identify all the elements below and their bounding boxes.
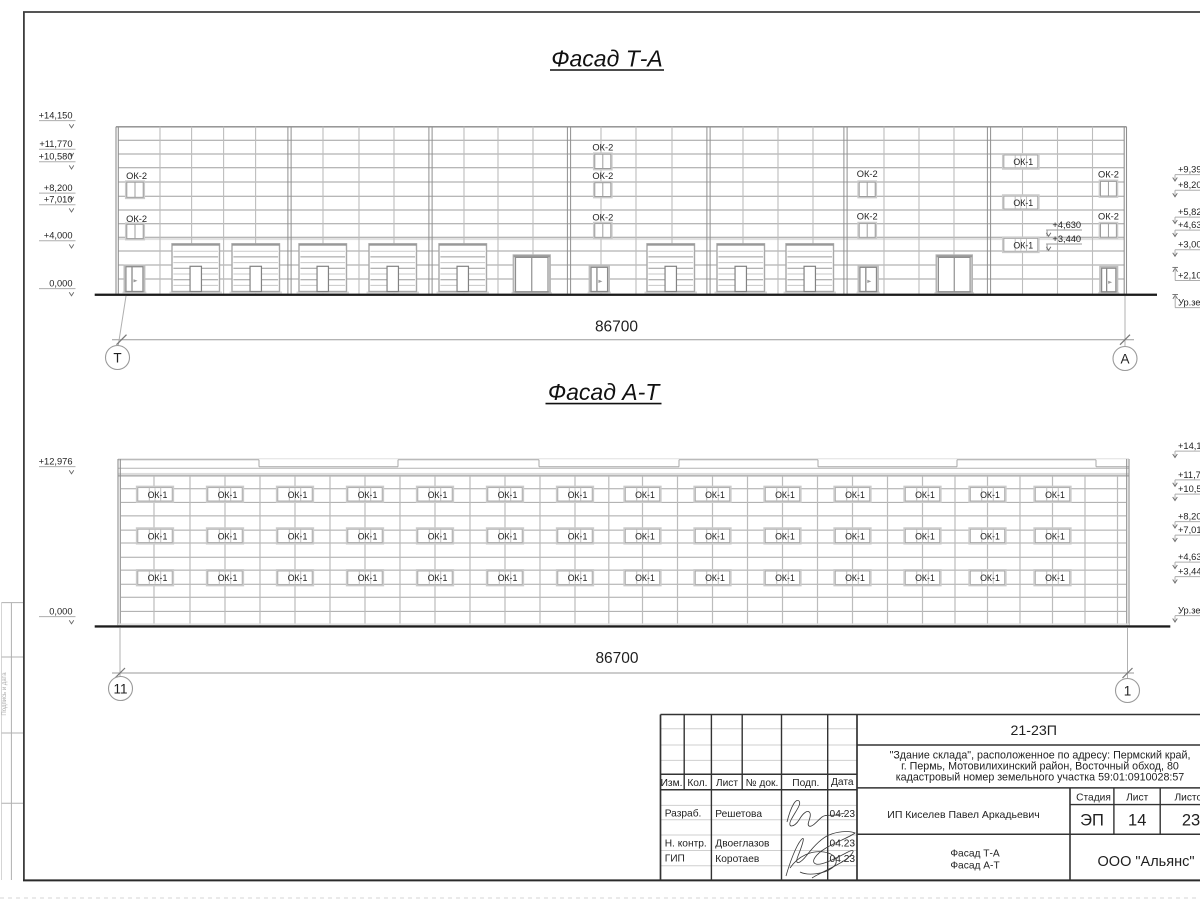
svg-text:ОК-1: ОК-1 xyxy=(845,490,865,500)
svg-text:ГИП: ГИП xyxy=(665,854,685,865)
svg-text:14: 14 xyxy=(1128,811,1146,829)
svg-text:Коротаев: Коротаев xyxy=(715,854,759,865)
svg-text:ОК-1: ОК-1 xyxy=(218,490,238,500)
svg-text:+7,010: +7,010 xyxy=(44,195,73,205)
svg-text:ОК-1: ОК-1 xyxy=(498,573,518,583)
svg-text:86700: 86700 xyxy=(595,650,638,667)
svg-text:ОК-2: ОК-2 xyxy=(126,214,147,224)
svg-text:ЭП: ЭП xyxy=(1080,811,1104,829)
svg-text:ОК-1: ОК-1 xyxy=(1045,490,1065,500)
svg-text:ОК-1: ОК-1 xyxy=(218,531,238,541)
svg-text:Фасад А-Т: Фасад А-Т xyxy=(950,861,999,872)
svg-text:Двоеглазов: Двоеглазов xyxy=(715,839,769,850)
svg-text:ОК-1: ОК-1 xyxy=(705,531,725,541)
svg-text:0,000: 0,000 xyxy=(49,278,72,288)
svg-text:ОК-1: ОК-1 xyxy=(845,531,865,541)
svg-text:ОК-1: ОК-1 xyxy=(775,531,795,541)
svg-text:Фасад Т-А: Фасад Т-А xyxy=(950,849,1000,860)
svg-text:ОК-2: ОК-2 xyxy=(857,211,878,221)
svg-text:ОК-1: ОК-1 xyxy=(288,490,308,500)
svg-text:+11,770: +11,770 xyxy=(1178,470,1200,480)
svg-text:+4,630: +4,630 xyxy=(1052,220,1081,230)
svg-text:ОК-2: ОК-2 xyxy=(592,212,613,222)
svg-text:+3,000: +3,000 xyxy=(1178,240,1200,250)
svg-text:Фасад Т-А: Фасад Т-А xyxy=(551,46,663,72)
svg-text:+12,976: +12,976 xyxy=(39,456,73,466)
svg-text:Дата: Дата xyxy=(831,777,854,788)
svg-text:86700: 86700 xyxy=(595,319,638,336)
svg-text:ИП Киселев Павел Аркадьевич: ИП Киселев Павел Аркадьевич xyxy=(887,809,1039,821)
svg-text:ОК-1: ОК-1 xyxy=(635,531,655,541)
svg-text:ОК-2: ОК-2 xyxy=(1098,212,1119,222)
svg-text:ОК-1: ОК-1 xyxy=(915,531,935,541)
svg-text:ОК-1: ОК-1 xyxy=(568,531,588,541)
svg-text:23: 23 xyxy=(1182,811,1200,829)
svg-text:ОК-1: ОК-1 xyxy=(428,490,448,500)
svg-text:ОК-2: ОК-2 xyxy=(126,171,147,181)
svg-text:Изм.: Изм. xyxy=(661,778,683,789)
svg-text:ОК-1: ОК-1 xyxy=(845,573,865,583)
svg-text:ОК-1: ОК-1 xyxy=(568,490,588,500)
svg-text:+11,770: +11,770 xyxy=(39,139,72,149)
svg-text:21-23П: 21-23П xyxy=(1010,723,1056,739)
svg-text:Решетова: Решетова xyxy=(715,809,762,820)
svg-text:ОК-1: ОК-1 xyxy=(705,573,725,583)
svg-text:ОК-1: ОК-1 xyxy=(288,531,308,541)
svg-text:ОК-1: ОК-1 xyxy=(358,573,378,583)
svg-text:ОК-1: ОК-1 xyxy=(980,490,1000,500)
svg-text:+14,150: +14,150 xyxy=(39,110,73,120)
svg-text:+14,150: +14,150 xyxy=(1178,441,1200,451)
svg-text:Лист: Лист xyxy=(716,778,738,789)
svg-text:Подпись и дата: Подпись и дата xyxy=(2,672,8,716)
svg-text:ОК-1: ОК-1 xyxy=(358,490,378,500)
svg-text:ОК-1: ОК-1 xyxy=(358,531,378,541)
svg-text:+8,200: +8,200 xyxy=(1178,512,1200,522)
svg-text:ОК-1: ОК-1 xyxy=(1013,157,1033,167)
svg-text:ОК-1: ОК-1 xyxy=(428,573,448,583)
svg-text:1: 1 xyxy=(1124,683,1132,698)
svg-text:Ур.земли: Ур.земли xyxy=(1178,606,1200,616)
svg-text:ОК-1: ОК-1 xyxy=(148,490,168,500)
svg-text:Разраб.: Разраб. xyxy=(665,808,702,820)
svg-text:11: 11 xyxy=(113,681,127,696)
svg-text:Ур.земли: Ур.земли xyxy=(1178,298,1200,308)
svg-text:№ док.: № док. xyxy=(746,778,779,789)
svg-text:Подп.: Подп. xyxy=(792,778,819,789)
svg-text:ОК-1: ОК-1 xyxy=(775,490,795,500)
svg-text:+8,200: +8,200 xyxy=(1178,180,1200,190)
svg-text:ОК-1: ОК-1 xyxy=(148,573,168,583)
svg-text:А: А xyxy=(1120,351,1129,366)
svg-text:+7,010: +7,010 xyxy=(1178,525,1200,535)
svg-text:+8,200: +8,200 xyxy=(44,183,73,193)
svg-text:ОК-1: ОК-1 xyxy=(1013,240,1033,250)
svg-text:+2,100: +2,100 xyxy=(1178,270,1200,280)
svg-text:+4,630: +4,630 xyxy=(1178,220,1200,230)
svg-text:ОК-1: ОК-1 xyxy=(568,573,588,583)
svg-text:ОК-2: ОК-2 xyxy=(1098,169,1119,179)
svg-text:+10,580: +10,580 xyxy=(39,152,73,162)
svg-text:Фасад А-Т: Фасад А-Т xyxy=(548,379,661,405)
svg-text:04.23: 04.23 xyxy=(830,809,856,820)
svg-text:ОК-1: ОК-1 xyxy=(635,573,655,583)
svg-text:ОК-1: ОК-1 xyxy=(980,573,1000,583)
svg-text:0,000: 0,000 xyxy=(49,606,72,616)
svg-text:кадастровый номер земельного у: кадастровый номер земельного участка 59:… xyxy=(896,772,1185,784)
svg-text:ОК-1: ОК-1 xyxy=(428,531,448,541)
svg-text:+9,390: +9,390 xyxy=(1178,165,1200,175)
svg-text:+4,000: +4,000 xyxy=(44,231,73,241)
svg-text:ОК-1: ОК-1 xyxy=(1045,531,1065,541)
svg-text:+3,440: +3,440 xyxy=(1052,234,1081,244)
svg-text:ОК-1: ОК-1 xyxy=(775,573,795,583)
svg-text:+5,820: +5,820 xyxy=(1178,207,1200,217)
svg-text:+10,580: +10,580 xyxy=(1178,484,1200,494)
svg-text:ОК-1: ОК-1 xyxy=(498,490,518,500)
svg-text:ОК-2: ОК-2 xyxy=(592,143,613,153)
svg-text:ООО "Альянс": ООО "Альянс" xyxy=(1098,854,1195,870)
svg-text:ОК-1: ОК-1 xyxy=(1013,198,1033,208)
svg-text:Н. контр.: Н. контр. xyxy=(665,838,707,849)
svg-text:ОК-1: ОК-1 xyxy=(635,490,655,500)
svg-text:ОК-1: ОК-1 xyxy=(498,531,518,541)
svg-text:ОК-1: ОК-1 xyxy=(148,531,168,541)
svg-text:ОК-1: ОК-1 xyxy=(705,490,725,500)
svg-text:Кол.: Кол. xyxy=(687,778,707,789)
svg-text:+4,630: +4,630 xyxy=(1178,552,1200,562)
svg-text:ОК-1: ОК-1 xyxy=(218,573,238,583)
svg-text:ОК-2: ОК-2 xyxy=(592,171,613,181)
svg-text:ОК-1: ОК-1 xyxy=(915,490,935,500)
svg-text:Т: Т xyxy=(113,350,121,365)
svg-text:Стадия: Стадия xyxy=(1076,793,1111,804)
svg-text:+3,440: +3,440 xyxy=(1178,567,1200,577)
svg-text:ОК-1: ОК-1 xyxy=(915,573,935,583)
svg-text:Лист: Лист xyxy=(1126,793,1148,804)
svg-text:ОК-2: ОК-2 xyxy=(857,169,878,179)
svg-text:Листов: Листов xyxy=(1174,793,1200,804)
svg-text:ОК-1: ОК-1 xyxy=(1045,573,1065,583)
svg-text:ОК-1: ОК-1 xyxy=(980,531,1000,541)
svg-text:ОК-1: ОК-1 xyxy=(288,573,308,583)
